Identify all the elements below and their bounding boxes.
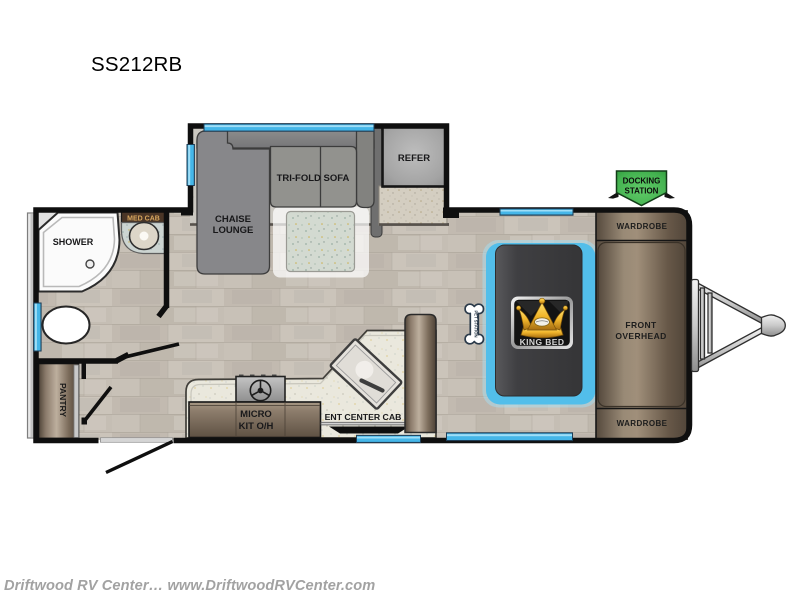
svg-text:ENT CENTER CAB: ENT CENTER CAB (325, 412, 402, 422)
svg-text:WARDROBE: WARDROBE (617, 222, 668, 231)
svg-text:MICRO: MICRO (240, 409, 272, 420)
svg-text:WARDROBE: WARDROBE (617, 419, 668, 428)
svg-text:SS212RB: SS212RB (91, 53, 182, 76)
svg-text:TRI-FOLD SOFA: TRI-FOLD SOFA (277, 173, 350, 184)
svg-text:KIT O/H: KIT O/H (239, 421, 274, 432)
svg-text:DOCKING: DOCKING (623, 177, 661, 186)
svg-text:FRONT: FRONT (625, 320, 657, 330)
svg-text:SHOWER: SHOWER (53, 237, 94, 247)
svg-text:CHAISE: CHAISE (215, 214, 251, 225)
svg-text:STATION: STATION (625, 187, 659, 196)
svg-text:PET STATION: PET STATION (473, 310, 478, 337)
svg-text:REFER: REFER (398, 153, 430, 164)
svg-text:LOUNGE: LOUNGE (213, 225, 254, 236)
svg-text:KING BED: KING BED (520, 337, 565, 347)
svg-text:PANTRY: PANTRY (58, 383, 68, 417)
svg-text:Driftwood RV Center… www.Drift: Driftwood RV Center… www.DriftwoodRVCent… (4, 578, 375, 594)
svg-text:OVERHEAD: OVERHEAD (615, 331, 666, 341)
svg-text:MED CAB: MED CAB (127, 216, 160, 223)
